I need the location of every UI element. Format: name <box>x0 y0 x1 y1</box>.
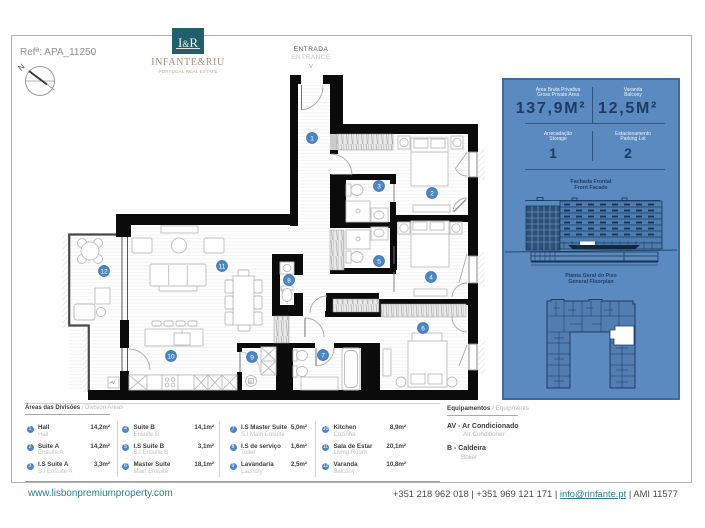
svg-text:8: 8 <box>287 278 291 285</box>
svg-text:3: 3 <box>377 184 381 191</box>
svg-text:9: 9 <box>250 355 254 362</box>
svg-text:B: B <box>249 379 252 384</box>
svg-text:AV: AV <box>110 380 116 385</box>
svg-text:1: 1 <box>310 136 314 143</box>
svg-text:6: 6 <box>421 326 425 333</box>
svg-text:5: 5 <box>377 259 381 266</box>
svg-text:12: 12 <box>100 269 108 276</box>
svg-text:4: 4 <box>429 275 433 282</box>
svg-text:11: 11 <box>219 264 226 271</box>
svg-text:10: 10 <box>167 354 175 361</box>
svg-text:2: 2 <box>430 191 434 198</box>
svg-text:7: 7 <box>321 353 325 360</box>
